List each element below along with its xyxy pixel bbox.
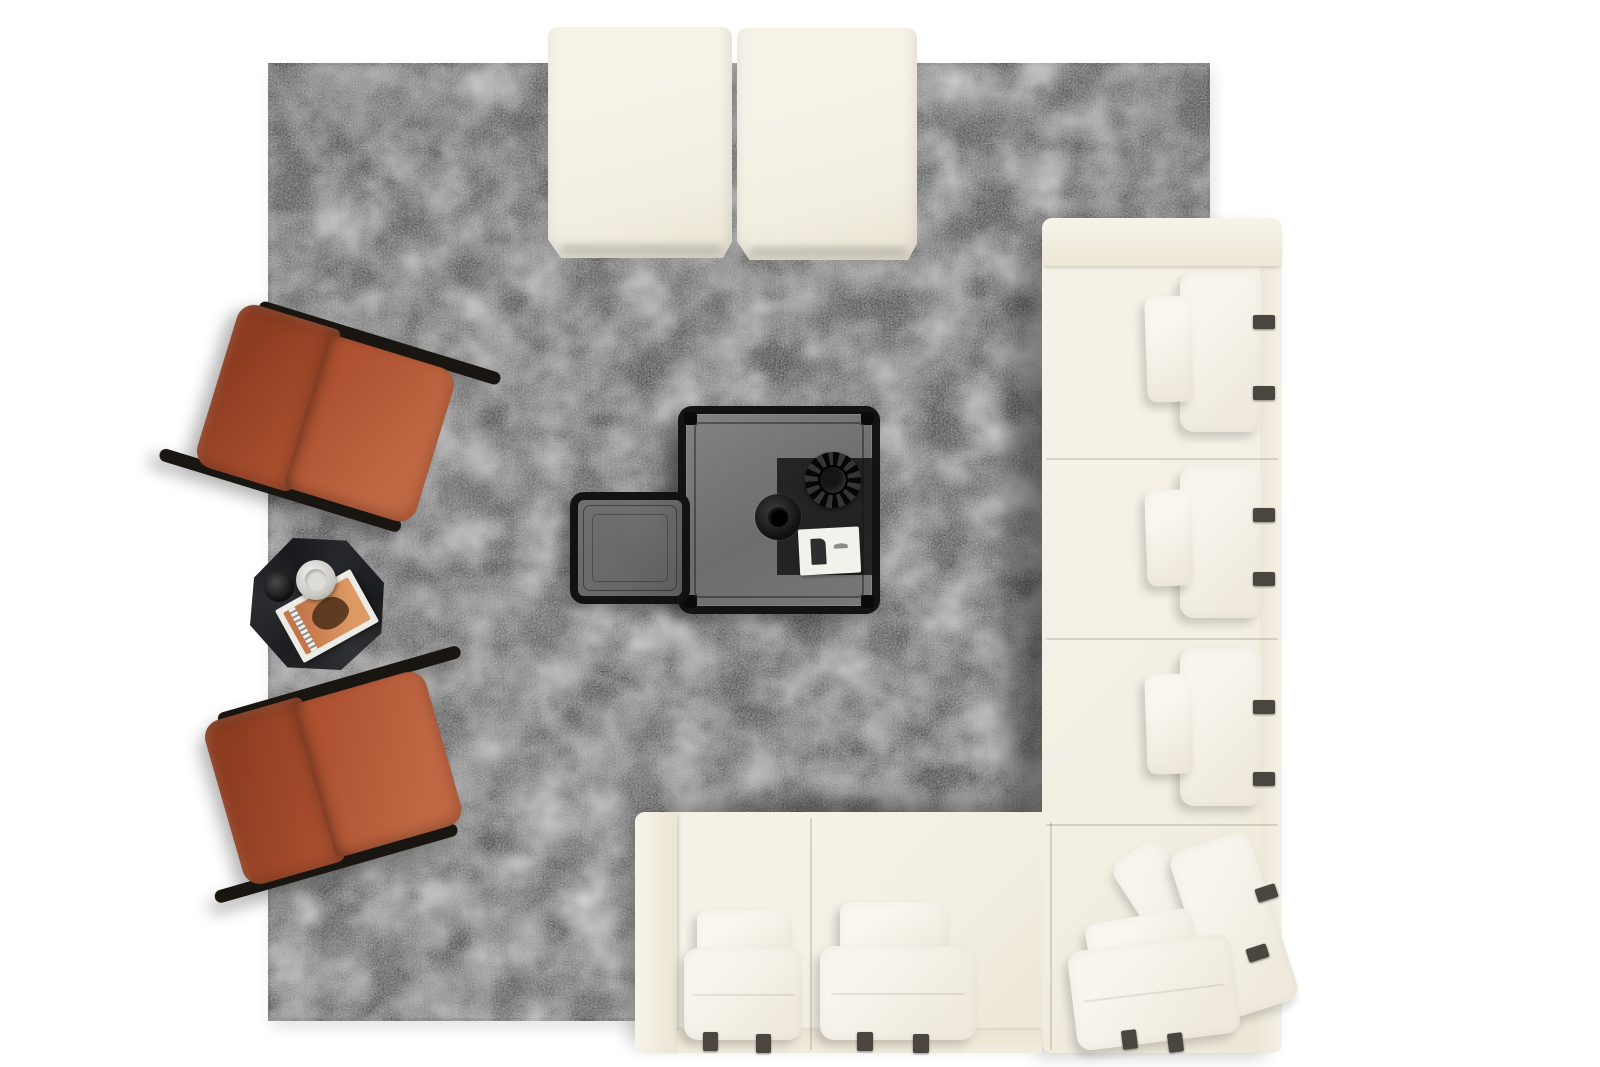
sofa-armrest-top xyxy=(1042,218,1282,266)
sofa-seat-pillow xyxy=(684,948,802,1040)
sofa-lumbar-pillow xyxy=(1144,489,1193,587)
pillow-strap xyxy=(1121,1029,1138,1050)
sofa-armrest-left xyxy=(635,812,677,1053)
table-corner-cap xyxy=(861,595,874,608)
pillow-strap xyxy=(756,1034,771,1053)
pillow-strap xyxy=(703,1032,718,1051)
small-black-bowl xyxy=(264,572,294,602)
pillow-strap xyxy=(1253,572,1275,586)
black-bowl xyxy=(755,494,801,540)
sofa-back-pillow xyxy=(1180,648,1262,806)
nesting-table xyxy=(570,492,690,604)
pillow-strap xyxy=(1253,386,1275,400)
ottoman-left xyxy=(548,27,732,258)
sofa-back-pillow xyxy=(1180,466,1262,618)
sofa-seat-pillow xyxy=(820,946,976,1040)
ottoman-right xyxy=(737,28,917,260)
white-booklet xyxy=(798,526,861,575)
glass-cup xyxy=(296,560,336,600)
pillow-strap xyxy=(1167,1032,1184,1053)
pillow-strap xyxy=(1253,315,1275,329)
pillow-strap xyxy=(1253,700,1275,714)
pillow-strap xyxy=(1253,508,1275,522)
sofa-corner-seat-pillow xyxy=(1067,932,1242,1051)
fluted-vase xyxy=(805,452,861,508)
pillow-strap xyxy=(913,1034,929,1053)
living-room-photo xyxy=(0,0,1600,1067)
sofa-back-pillow xyxy=(1180,272,1262,432)
sofa-module-seam xyxy=(1046,458,1278,460)
pillow-strap xyxy=(1253,772,1275,786)
sofa-lumbar-pillow xyxy=(1144,673,1193,775)
sofa-lumbar-pillow xyxy=(1144,295,1194,403)
sofa-module-seam xyxy=(1050,822,1052,1050)
sofa-module-seam xyxy=(1046,824,1278,826)
sofa-module-seam xyxy=(810,818,812,1050)
pillow-strap xyxy=(857,1032,873,1051)
table-corner-cap xyxy=(684,412,697,425)
sofa-module-seam xyxy=(1046,638,1278,640)
table-corner-cap xyxy=(861,412,874,425)
